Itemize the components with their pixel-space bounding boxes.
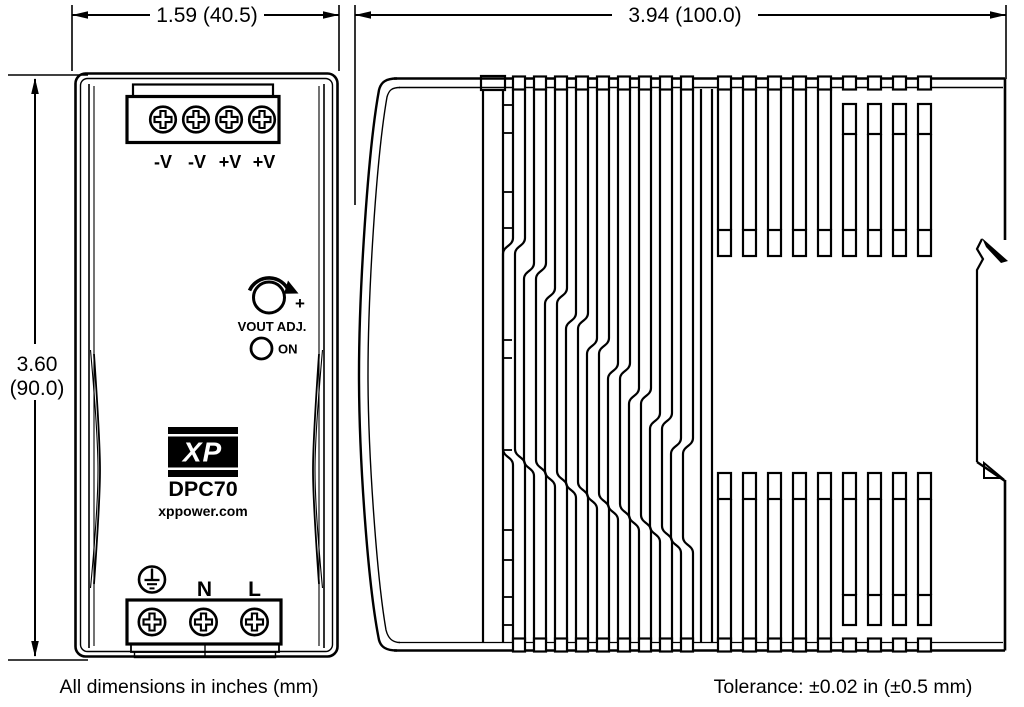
front-panel-edge — [94, 86, 319, 646]
vent-cap — [868, 77, 881, 90]
vent-cap — [618, 77, 630, 90]
screw-cross-slot — [246, 614, 263, 631]
vent-slot-end — [893, 473, 906, 499]
terminal-cover-strip — [133, 85, 273, 97]
vent-slot-end — [843, 230, 856, 256]
vent-cap — [893, 77, 906, 90]
vent-slot-step — [868, 104, 881, 134]
vent-slot-end — [918, 473, 931, 499]
screw-cross-slot — [254, 111, 271, 128]
vent-slot-end — [868, 473, 881, 499]
earth-ground-icon — [139, 567, 165, 593]
dimension-arrow — [355, 11, 371, 19]
vent-cap — [681, 639, 693, 652]
vent-slot-step — [843, 595, 856, 625]
vent-slot-step — [918, 104, 931, 134]
dimension-front-width-label: 1.59 (40.5) — [156, 4, 258, 27]
led-label: ON — [278, 342, 298, 357]
mechanical-drawing: 1.59 (40.5) 3.94 (100.0) 3.60 (90.0) — [0, 0, 1024, 707]
logo-bar-top — [168, 427, 238, 434]
vent-slot-end — [768, 230, 781, 256]
logo-bar-bottom — [168, 470, 238, 477]
potentiometer-knob-icon[interactable] — [254, 282, 285, 313]
vent-cap — [681, 77, 693, 90]
adjust-plus-label: + — [295, 294, 305, 313]
vent-cap — [534, 639, 546, 652]
vent-cap — [576, 77, 588, 90]
power-led-icon — [251, 338, 272, 359]
vent-cap — [639, 77, 651, 90]
vent-slot-end — [718, 230, 731, 256]
dimension-height-mm-label: (90.0) — [10, 377, 65, 400]
terminal-label: -V — [154, 152, 172, 172]
side-front-edge-inner — [368, 88, 400, 643]
vent-slot-end — [793, 230, 806, 256]
screw-cross-slot — [195, 614, 212, 631]
din-clip-top-hook — [982, 238, 1008, 263]
dimension-arrow — [323, 11, 339, 19]
vent-slot-line — [743, 499, 756, 642]
vent-slot-end — [743, 230, 756, 256]
vent-slot-line — [893, 499, 906, 595]
vent-slot-line — [743, 89, 756, 230]
front-body-outline — [76, 74, 338, 657]
vent-cap — [918, 77, 931, 90]
vent-slot-step — [893, 595, 906, 625]
terminal-label: +V — [219, 152, 242, 172]
vent-slot-line — [768, 499, 781, 642]
model-label: DPC70 — [168, 477, 237, 501]
vent-wall — [701, 89, 712, 642]
vent-cap — [743, 639, 756, 652]
vent-slot-line — [793, 89, 806, 230]
vent-slot-line — [768, 89, 781, 230]
dimension-arrow — [990, 11, 1006, 19]
screw-cross-slot — [188, 111, 205, 128]
vent-cap — [555, 77, 567, 90]
input-terminal-block: N L — [127, 567, 281, 658]
vent-slot-line — [818, 499, 831, 642]
vent-cap — [843, 77, 856, 90]
din-clip-bottom-latch[interactable] — [984, 463, 1002, 478]
vent-slot-line — [843, 499, 856, 595]
vent-channel-line — [599, 89, 609, 642]
vent-slot-step — [893, 104, 906, 134]
screw-cross-slot — [144, 614, 161, 631]
vent-cap — [793, 77, 806, 90]
vent-slot-line — [893, 134, 906, 230]
vent-slot-step — [918, 595, 931, 625]
vent-slot-line — [918, 499, 931, 595]
vent-slot-end — [718, 473, 731, 499]
screw-cross-slot — [155, 111, 172, 128]
front-view: -V -V +V +V + VOUT ADJ. ON XP DPC70 xppo… — [76, 74, 338, 658]
vent-slot-end — [818, 230, 831, 256]
branding: XP DPC70 xppower.com — [158, 427, 247, 519]
vent-cap — [597, 77, 609, 90]
vent-channel-line — [662, 89, 672, 642]
vent-cap — [918, 639, 931, 652]
vent-slot-end — [743, 473, 756, 499]
vent-column — [483, 89, 503, 642]
vent-cap — [843, 639, 856, 652]
vent-depth-ticks — [504, 105, 513, 625]
vent-slot-end — [793, 473, 806, 499]
vent-slot-line — [718, 89, 731, 230]
vent-cap — [618, 639, 630, 652]
website-label: xppower.com — [158, 503, 247, 519]
vent-slot-line — [868, 499, 881, 595]
dimension-arrow — [31, 641, 39, 657]
xp-logo: XP — [181, 437, 222, 468]
vent-slot-step — [843, 104, 856, 134]
vent-cap — [768, 77, 781, 90]
dimension-height-in-label: 3.60 — [17, 353, 58, 376]
vent-slot-end — [893, 230, 906, 256]
vent-cap — [893, 639, 906, 652]
units-note: All dimensions in inches (mm) — [60, 676, 319, 698]
vent-cap — [513, 639, 525, 652]
vent-slot-line — [718, 499, 731, 642]
output-terminal-block: -V -V +V +V — [127, 85, 279, 173]
vent-cap — [639, 639, 651, 652]
dimension-arrow — [72, 11, 88, 19]
vent-slot-end — [768, 473, 781, 499]
adjust-and-led: + VOUT ADJ. ON — [238, 278, 307, 359]
vent-cap — [534, 77, 546, 90]
din-rail-clip — [977, 79, 1008, 651]
vent-cap — [660, 77, 672, 90]
front-panel-edge — [89, 84, 324, 648]
terminal-label: +V — [253, 152, 276, 172]
vent-slot-line — [918, 134, 931, 230]
vent-cap — [513, 77, 525, 90]
dimension-side-depth-label: 3.94 (100.0) — [628, 4, 741, 27]
terminal-label-line: L — [248, 578, 261, 601]
vent-slot-end — [843, 473, 856, 499]
rotation-arrow-head — [284, 281, 299, 294]
adjust-label: VOUT ADJ. — [238, 319, 307, 334]
side-groove — [94, 354, 100, 584]
screw-cross-slot — [221, 111, 238, 128]
terminal-label-neutral: N — [197, 578, 212, 601]
vent-cap — [576, 639, 588, 652]
vent-cap — [818, 77, 831, 90]
vent-cap — [768, 639, 781, 652]
terminal-label: -V — [188, 152, 206, 172]
vent-cap — [555, 639, 567, 652]
vent-slot-end — [818, 473, 831, 499]
vent-slot-line — [868, 134, 881, 230]
vent-channel-line — [620, 89, 630, 642]
vent-cap — [718, 639, 731, 652]
front-body-inner-outline — [81, 79, 333, 652]
dimension-front-width: 1.59 (40.5) — [72, 4, 339, 71]
vent-slot-line — [843, 134, 856, 230]
terminal-screws-input — [139, 609, 268, 635]
vent-fins — [503, 77, 931, 652]
vent-slot-line — [818, 89, 831, 230]
dimension-arrow — [31, 78, 39, 94]
terminal-screws-output — [150, 107, 275, 133]
vent-cap — [597, 639, 609, 652]
vent-cap — [793, 639, 806, 652]
vent-slot-end — [918, 230, 931, 256]
vent-cap — [660, 639, 672, 652]
vent-cap — [718, 77, 731, 90]
vent-channel-line — [683, 89, 693, 642]
side-groove — [313, 354, 319, 584]
vent-slot-step — [868, 595, 881, 625]
side-view — [359, 76, 1008, 652]
vent-channel-line — [641, 89, 651, 642]
vent-cap — [743, 77, 756, 90]
vent-slot-line — [793, 499, 806, 642]
vent-cap — [818, 639, 831, 652]
tolerance-note: Tolerance: ±0.02 in (±0.5 mm) — [714, 676, 973, 698]
vent-channel-line — [503, 89, 513, 642]
vent-cap — [868, 639, 881, 652]
vent-slot-end — [868, 230, 881, 256]
